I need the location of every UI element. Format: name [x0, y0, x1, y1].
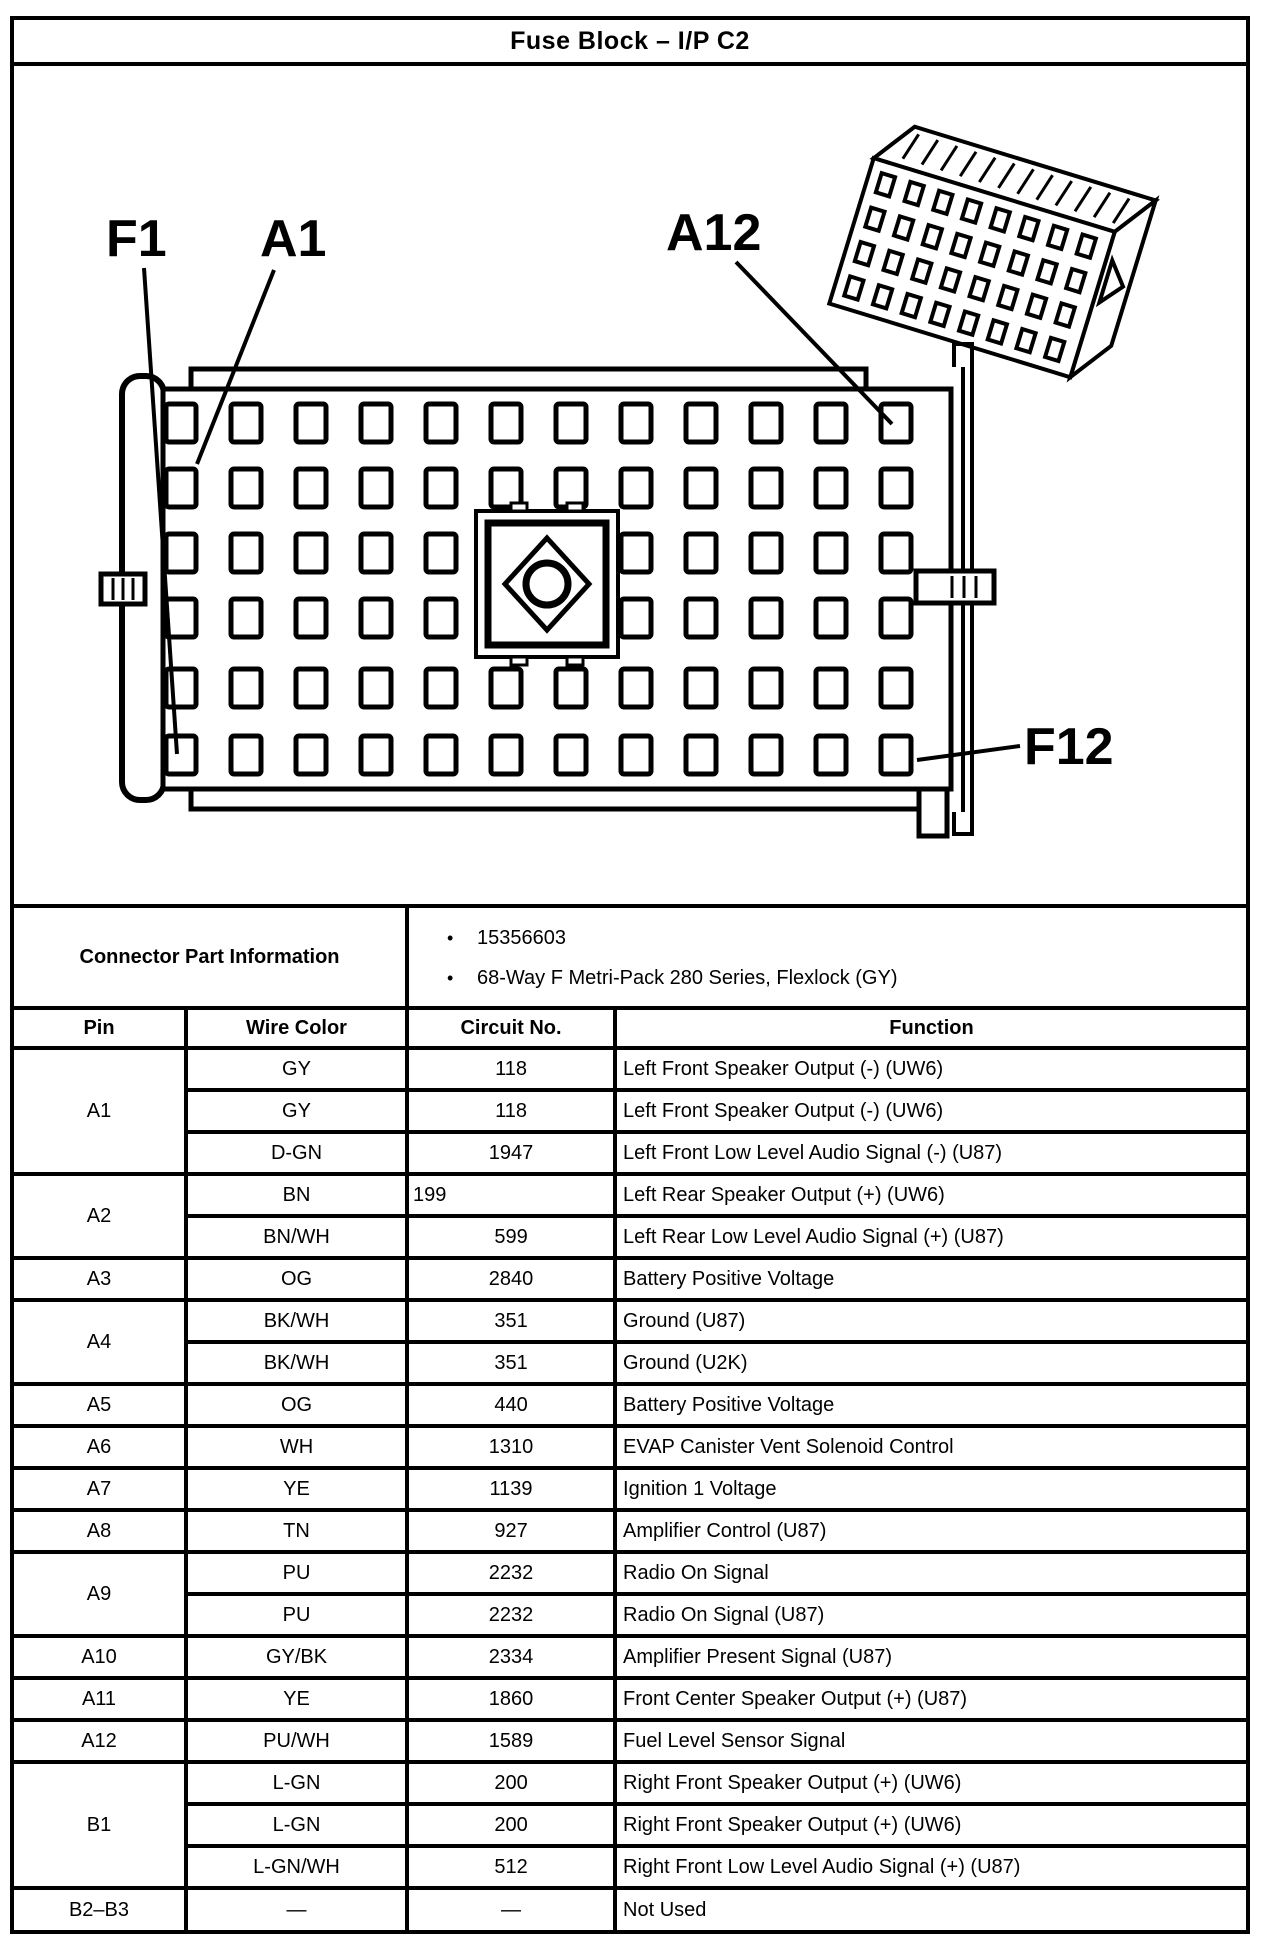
wire-color-cell: GY/BK [186, 1636, 407, 1678]
page-title: Fuse Block – I/P C2 [510, 27, 750, 56]
circuit-no-cell: 2232 [407, 1552, 615, 1594]
diagram-cell: F1 A1 A12 F12 [14, 66, 1246, 908]
function-cell: Right Front Speaker Output (+) (UW6) [615, 1804, 1246, 1846]
fuse-cavity [751, 599, 781, 637]
wire-color-cell: D-GN [186, 1132, 407, 1174]
wire-color-cell: BN/WH [186, 1216, 407, 1258]
wire-color-cell: L-GN [186, 1762, 407, 1804]
pinout-row: A2BN199Left Rear Speaker Output (+) (UW6… [14, 1174, 1246, 1216]
fuse-cavity [231, 736, 261, 774]
fuse-cavity [621, 736, 651, 774]
circuit-no-cell: 1589 [407, 1720, 615, 1762]
fuse-cavity [881, 404, 911, 442]
circuit-no-cell: 2840 [407, 1258, 615, 1300]
pin-cell: A10 [14, 1636, 186, 1678]
fuse-cavity [231, 599, 261, 637]
fuse-cavity [491, 669, 521, 707]
fuse-cavity [166, 534, 196, 572]
fuse-cavity [881, 534, 911, 572]
wire-color-cell: OG [186, 1384, 407, 1426]
function-cell: Right Front Speaker Output (+) (UW6) [615, 1762, 1246, 1804]
fuse-cavity [816, 404, 846, 442]
wire-color-cell: PU/WH [186, 1720, 407, 1762]
fuse-cavity [491, 469, 521, 507]
wire-color-cell: WH [186, 1426, 407, 1468]
pinout-row: A10GY/BK2334Amplifier Present Signal (U8… [14, 1636, 1246, 1678]
pin-cell: A3 [14, 1258, 186, 1300]
fuse-cavity [426, 534, 456, 572]
pin-cell: B2–B3 [14, 1888, 186, 1930]
pinout-row: A11YE1860Front Center Speaker Output (+)… [14, 1678, 1246, 1720]
fuse-cavity [881, 669, 911, 707]
bottom-flange [191, 789, 919, 809]
wire-color-cell: L-GN [186, 1804, 407, 1846]
function-cell: Amplifier Present Signal (U87) [615, 1636, 1246, 1678]
function-cell: Not Used [615, 1888, 1246, 1930]
function-cell: Ignition 1 Voltage [615, 1468, 1246, 1510]
bullet-icon: • [447, 958, 477, 998]
pin-cell: A9 [14, 1552, 186, 1636]
fuse-cavity [621, 469, 651, 507]
fuse-cavity [361, 599, 391, 637]
fuse-cavity [556, 736, 586, 774]
fuse-cavity [621, 669, 651, 707]
circuit-no-cell: 2232 [407, 1594, 615, 1636]
fuse-cavity [426, 469, 456, 507]
fuse-cavity [296, 736, 326, 774]
pinout-row: B1L-GN200Right Front Speaker Output (+) … [14, 1762, 1246, 1804]
fuse-cavity [296, 469, 326, 507]
fuse-cavity [816, 599, 846, 637]
function-cell: Ground (U87) [615, 1300, 1246, 1342]
wire-color-cell: BN [186, 1174, 407, 1216]
label-a12: A12 [666, 204, 761, 262]
circuit-no-cell: 599 [407, 1216, 615, 1258]
circuit-no-cell: 199 [407, 1174, 615, 1216]
fuse-cavity [751, 736, 781, 774]
function-cell: Left Front Low Level Audio Signal (-) (U… [615, 1132, 1246, 1174]
wire-color-cell: YE [186, 1678, 407, 1720]
fuse-cavity [686, 599, 716, 637]
pin-cell: A2 [14, 1174, 186, 1258]
fuse-cavity [621, 534, 651, 572]
fuse-cavity [231, 469, 261, 507]
fuse-cavity [751, 534, 781, 572]
fuse-cavity [361, 404, 391, 442]
fuse-cavity [751, 404, 781, 442]
fuse-cavity [361, 669, 391, 707]
pinout-row: A4BK/WH351Ground (U87) [14, 1300, 1246, 1342]
fuse-cavity [296, 669, 326, 707]
pin-cell: A1 [14, 1048, 186, 1174]
left-tab [101, 574, 145, 604]
wire-color-cell: GY [186, 1090, 407, 1132]
fuse-cavity [491, 736, 521, 774]
fuse-cavity [751, 469, 781, 507]
function-cell: Left Front Speaker Output (-) (UW6) [615, 1090, 1246, 1132]
fuse-cavity [426, 404, 456, 442]
circuit-no-cell: 200 [407, 1762, 615, 1804]
fuse-cavity [556, 669, 586, 707]
fuse-cavity [361, 469, 391, 507]
pinout-table-body: A1GY118Left Front Speaker Output (-) (UW… [14, 1048, 1246, 1930]
col-header-function: Function [615, 1008, 1246, 1048]
label-f1: F1 [106, 210, 167, 268]
col-header-circuit: Circuit No. [407, 1008, 615, 1048]
pinout-row: A12PU/WH1589Fuel Level Sensor Signal [14, 1720, 1246, 1762]
circuit-no-cell: 1139 [407, 1468, 615, 1510]
pinout-row: A9PU2232Radio On Signal [14, 1552, 1246, 1594]
fuse-cavity [816, 669, 846, 707]
circuit-no-cell: 351 [407, 1342, 615, 1384]
wire-color-cell: YE [186, 1468, 407, 1510]
function-cell: Battery Positive Voltage [615, 1384, 1246, 1426]
pin-cell: B1 [14, 1762, 186, 1888]
function-cell: Radio On Signal (U87) [615, 1594, 1246, 1636]
fuse-cavity [426, 599, 456, 637]
fuse-cavity [621, 599, 651, 637]
wire-color-cell: TN [186, 1510, 407, 1552]
pin-cell: A7 [14, 1468, 186, 1510]
fuse-cavity [296, 599, 326, 637]
function-cell: Right Front Low Level Audio Signal (+) (… [615, 1846, 1246, 1888]
fuse-cavity [231, 534, 261, 572]
function-cell: Front Center Speaker Output (+) (U87) [615, 1678, 1246, 1720]
pin-cell: A12 [14, 1720, 186, 1762]
center-module [476, 503, 618, 665]
circuit-no-cell: 200 [407, 1804, 615, 1846]
circuit-no-cell: 118 [407, 1090, 615, 1132]
bullet-icon: • [447, 918, 477, 958]
pinout-row: A5OG440Battery Positive Voltage [14, 1384, 1246, 1426]
fuse-cavity [361, 534, 391, 572]
fuse-cavity [296, 534, 326, 572]
connector-info-label: Connector Part Information [14, 908, 407, 1008]
right-tab [916, 571, 994, 603]
wire-color-cell: GY [186, 1048, 407, 1090]
pinout-row: GY118Left Front Speaker Output (-) (UW6) [14, 1090, 1246, 1132]
function-cell: Ground (U2K) [615, 1342, 1246, 1384]
pinout-row: A7YE1139Ignition 1 Voltage [14, 1468, 1246, 1510]
pin-cell: A5 [14, 1384, 186, 1426]
wire-color-cell: PU [186, 1594, 407, 1636]
bottom-right-hook [919, 789, 947, 836]
circuit-no-cell: 2334 [407, 1636, 615, 1678]
fuse-cavity [686, 669, 716, 707]
pin-cell: A4 [14, 1300, 186, 1384]
fuse-block-diagram: F1 A1 A12 F12 [14, 66, 1238, 904]
connector-3d-icon [829, 118, 1155, 386]
pinout-row: A3OG2840Battery Positive Voltage [14, 1258, 1246, 1300]
wire-color-cell: OG [186, 1258, 407, 1300]
fuse-cavity [686, 736, 716, 774]
col-header-pin: Pin [14, 1008, 186, 1048]
connector-info-row: Connector Part Information • 15356603 • … [14, 908, 1246, 1008]
pin-cell: A11 [14, 1678, 186, 1720]
fuse-cavity [231, 669, 261, 707]
fuse-cavity [686, 469, 716, 507]
fuse-cavity [166, 736, 196, 774]
module-circle-icon [526, 563, 568, 605]
title-bar: Fuse Block – I/P C2 [14, 20, 1246, 66]
pinout-table: Connector Part Information • 15356603 • … [14, 908, 1246, 1930]
circuit-no-cell: 1947 [407, 1132, 615, 1174]
function-cell: Left Rear Low Level Audio Signal (+) (U8… [615, 1216, 1246, 1258]
top-flange [191, 369, 866, 389]
pinout-row: A8TN927Amplifier Control (U87) [14, 1510, 1246, 1552]
circuit-no-cell: 1860 [407, 1678, 615, 1720]
circuit-no-cell: 440 [407, 1384, 615, 1426]
label-a1: A1 [260, 210, 326, 268]
connector-info-bullets: • 15356603 • 68-Way F Metri-Pack 280 Ser… [407, 908, 1246, 1008]
fuse-cavity [296, 404, 326, 442]
col-header-wire: Wire Color [186, 1008, 407, 1048]
fuse-cavity [621, 404, 651, 442]
pinout-row: BN/WH599Left Rear Low Level Audio Signal… [14, 1216, 1246, 1258]
circuit-no-cell: 1310 [407, 1426, 615, 1468]
wire-color-cell: L-GN/WH [186, 1846, 407, 1888]
pinout-row: L-GN/WH512Right Front Low Level Audio Si… [14, 1846, 1246, 1888]
fuse-cavity [686, 534, 716, 572]
pinout-row: L-GN200Right Front Speaker Output (+) (U… [14, 1804, 1246, 1846]
pinout-row: D-GN1947Left Front Low Level Audio Signa… [14, 1132, 1246, 1174]
bullet-item: • 68-Way F Metri-Pack 280 Series, Flexlo… [447, 958, 1246, 998]
circuit-no-cell: 927 [407, 1510, 615, 1552]
function-cell: Left Front Speaker Output (-) (UW6) [615, 1048, 1246, 1090]
circuit-no-cell: 351 [407, 1300, 615, 1342]
fuse-cavity [816, 534, 846, 572]
connector-description: 68-Way F Metri-Pack 280 Series, Flexlock… [477, 958, 897, 998]
bullet-item: • 15356603 [447, 918, 1246, 958]
fuse-cavity [231, 404, 261, 442]
wire-color-cell: — [186, 1888, 407, 1930]
fuse-cavity [881, 599, 911, 637]
fuse-block-drawing [101, 344, 994, 836]
function-cell: Amplifier Control (U87) [615, 1510, 1246, 1552]
pin-cell: A8 [14, 1510, 186, 1552]
function-cell: Radio On Signal [615, 1552, 1246, 1594]
wire-color-cell: BK/WH [186, 1342, 407, 1384]
pin-cell: A6 [14, 1426, 186, 1468]
fuse-cavity [816, 469, 846, 507]
function-cell: Left Rear Speaker Output (+) (UW6) [615, 1174, 1246, 1216]
pinout-row: PU2232Radio On Signal (U87) [14, 1594, 1246, 1636]
function-cell: EVAP Canister Vent Solenoid Control [615, 1426, 1246, 1468]
table-header-row: Pin Wire Color Circuit No. Function [14, 1008, 1246, 1048]
pinout-row: A1GY118Left Front Speaker Output (-) (UW… [14, 1048, 1246, 1090]
wire-color-cell: PU [186, 1552, 407, 1594]
fuse-cavity [361, 736, 391, 774]
fuse-cavity [686, 404, 716, 442]
fuse-cavity [556, 469, 586, 507]
circuit-no-cell: — [407, 1888, 615, 1930]
wire-color-cell: BK/WH [186, 1300, 407, 1342]
fuse-cavity [166, 404, 196, 442]
pinout-row: A6WH1310EVAP Canister Vent Solenoid Cont… [14, 1426, 1246, 1468]
fuse-cavity [166, 469, 196, 507]
fuse-cavity [556, 404, 586, 442]
part-number: 15356603 [477, 918, 566, 958]
pinout-row: B2–B3——Not Used [14, 1888, 1246, 1930]
function-cell: Battery Positive Voltage [615, 1258, 1246, 1300]
fuse-cavity [816, 736, 846, 774]
fuse-cavity [426, 669, 456, 707]
fuse-cavity [751, 669, 781, 707]
label-f12: F12 [1024, 718, 1114, 776]
fuse-cavity [881, 736, 911, 774]
fuse-cavity [881, 469, 911, 507]
page-frame: Fuse Block – I/P C2 [10, 16, 1250, 1934]
pinout-row: BK/WH351Ground (U2K) [14, 1342, 1246, 1384]
function-cell: Fuel Level Sensor Signal [615, 1720, 1246, 1762]
circuit-no-cell: 118 [407, 1048, 615, 1090]
fuse-cavity [491, 404, 521, 442]
circuit-no-cell: 512 [407, 1846, 615, 1888]
fuse-cavity [426, 736, 456, 774]
